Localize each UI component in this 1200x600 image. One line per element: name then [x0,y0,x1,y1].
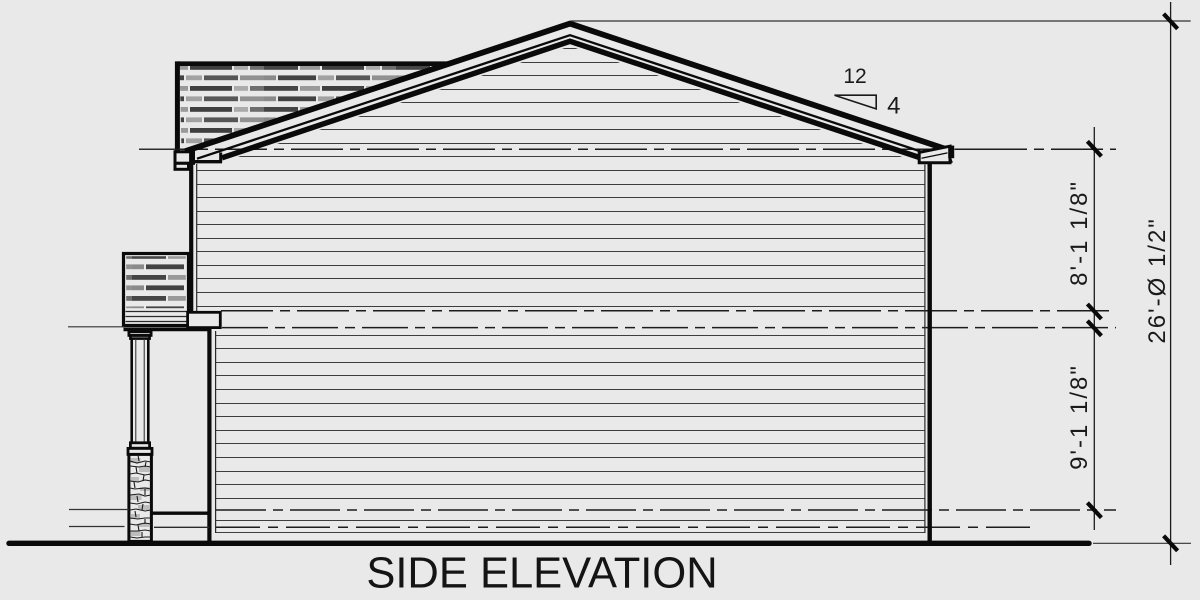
svg-text:26'-Ø 1/2": 26'-Ø 1/2" [1144,217,1171,344]
svg-text:12: 12 [843,65,866,88]
svg-text:SIDE ELEVATION: SIDE ELEVATION [366,550,717,598]
svg-text:9'-1 1/8": 9'-1 1/8" [1066,364,1093,470]
svg-text:4: 4 [887,93,900,120]
svg-text:8'-1 1/8": 8'-1 1/8" [1066,180,1093,286]
